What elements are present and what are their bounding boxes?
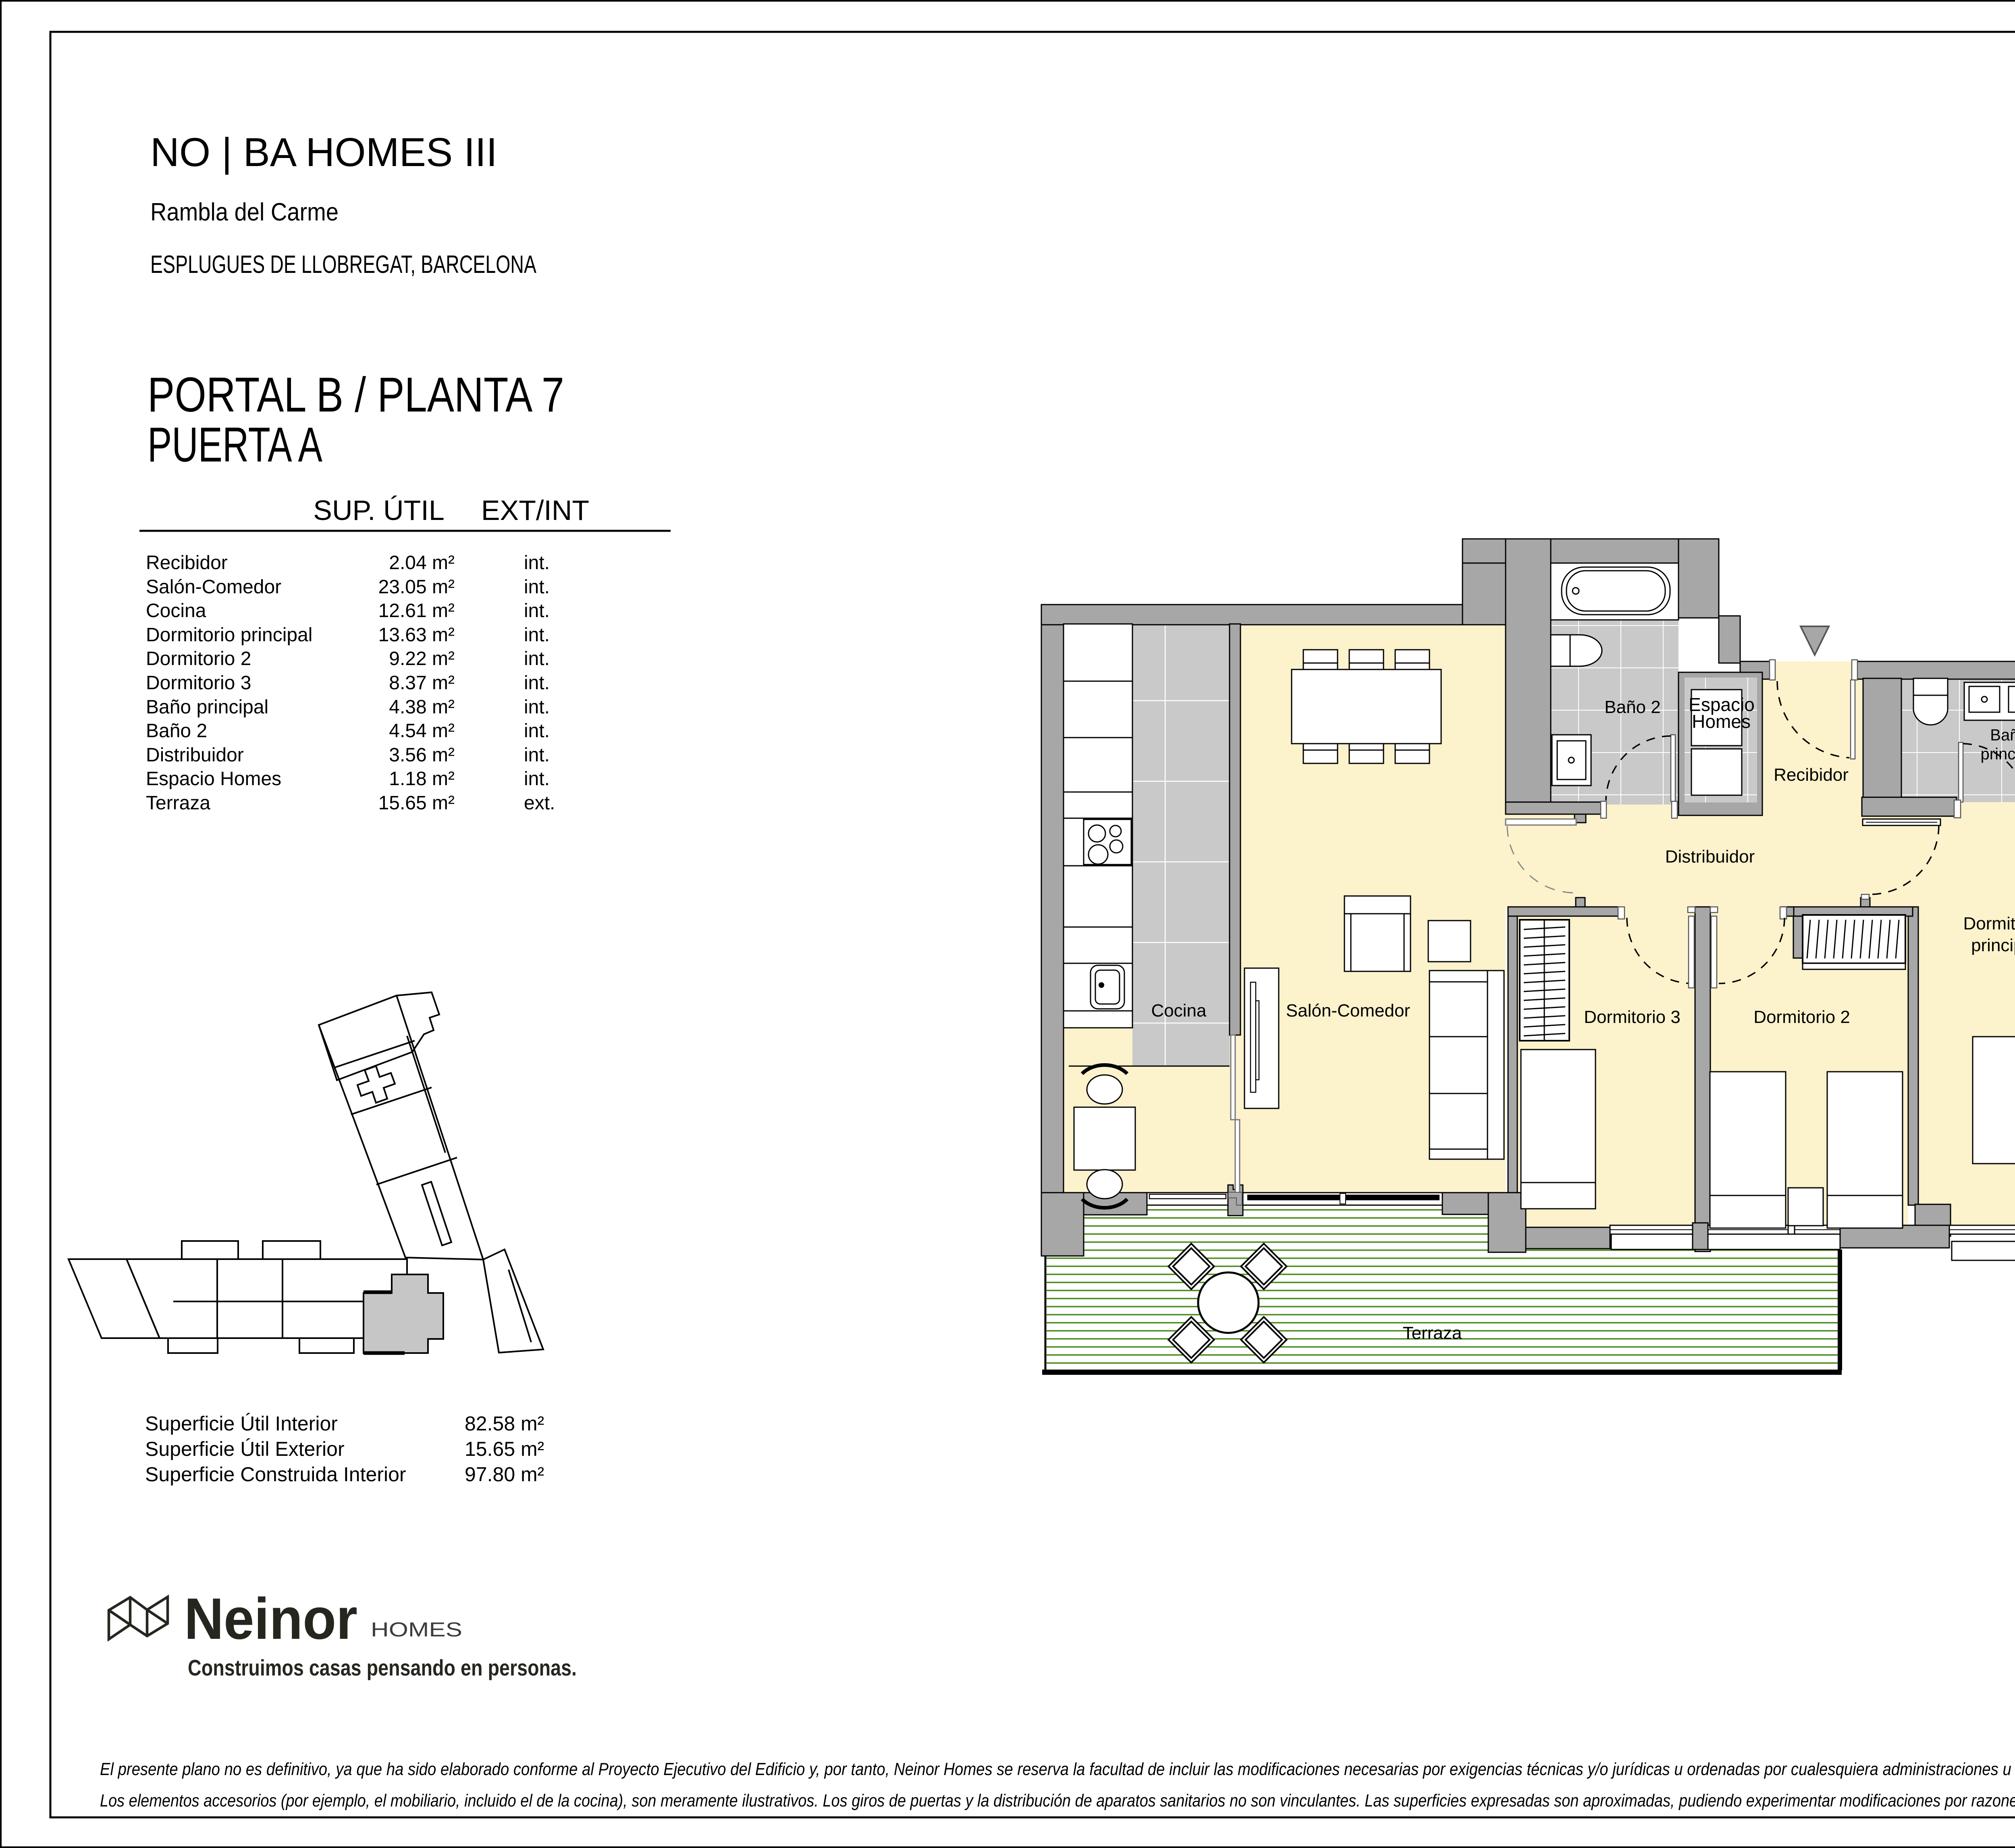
svg-text:Terraza: Terraza (146, 792, 210, 814)
svg-text:97.80 m²: 97.80 m² (465, 1463, 544, 1486)
svg-text:Recibidor: Recibidor (1774, 765, 1849, 785)
svg-text:ESPLUGUES DE LLOBREGAT, BARCEL: ESPLUGUES DE LLOBREGAT, BARCELONA (150, 251, 536, 279)
svg-text:PUERTA A: PUERTA A (147, 417, 322, 472)
svg-text:Dormitorio: Dormitorio (1963, 914, 2015, 933)
svg-text:Construimos casas pensando en: Construimos casas pensando en personas. (188, 1655, 577, 1680)
svg-text:4.38 m²: 4.38 m² (389, 696, 455, 718)
svg-text:ext.: ext. (524, 792, 555, 814)
svg-text:Superficie Útil Exterior: Superficie Útil Exterior (145, 1438, 345, 1460)
svg-text:Dormitorio 2: Dormitorio 2 (1753, 1007, 1850, 1027)
svg-text:Cocina: Cocina (146, 600, 206, 622)
svg-text:El presente plano no es defini: El presente plano no es definitivo, ya q… (100, 1760, 2015, 1779)
svg-text:NO | BA HOMES III: NO | BA HOMES III (150, 130, 497, 175)
svg-text:Dormitorio 3: Dormitorio 3 (1584, 1007, 1681, 1027)
svg-text:SUP. ÚTIL: SUP. ÚTIL (313, 495, 445, 526)
svg-text:3.56 m²: 3.56 m² (389, 744, 455, 766)
svg-text:int.: int. (524, 648, 550, 669)
svg-text:principal: principal (1981, 745, 2015, 763)
svg-text:23.05 m²: 23.05 m² (378, 576, 455, 598)
svg-text:Terraza: Terraza (1403, 1323, 1462, 1343)
svg-text:Dormitorio principal: Dormitorio principal (146, 624, 312, 646)
svg-text:Salón-Comedor: Salón-Comedor (146, 576, 281, 598)
svg-text:Baño: Baño (1990, 726, 2015, 744)
svg-text:15.65 m²: 15.65 m² (465, 1438, 544, 1460)
svg-text:8.37 m²: 8.37 m² (389, 672, 455, 694)
svg-text:82.58 m²: 82.58 m² (465, 1412, 544, 1435)
svg-text:Homes: Homes (1692, 711, 1751, 732)
svg-text:15.65 m²: 15.65 m² (378, 792, 455, 814)
svg-text:Recibidor: Recibidor (146, 552, 228, 574)
svg-text:12.61 m²: 12.61 m² (378, 600, 455, 622)
svg-text:Dormitorio 3: Dormitorio 3 (146, 672, 251, 694)
svg-text:int.: int. (524, 600, 550, 622)
svg-text:Salón-Comedor: Salón-Comedor (1286, 1001, 1410, 1021)
svg-text:Superficie Construida Interior: Superficie Construida Interior (145, 1463, 406, 1486)
svg-text:int.: int. (524, 672, 550, 694)
svg-text:Rambla del Carme: Rambla del Carme (150, 198, 339, 226)
svg-text:Los elementos accesorios (por: Los elementos accesorios (por ejemplo, e… (100, 1791, 2015, 1811)
svg-text:Baño 2: Baño 2 (1604, 697, 1660, 717)
svg-text:int.: int. (524, 720, 550, 742)
svg-text:HOMES: HOMES (371, 1618, 462, 1641)
svg-text:Neinor: Neinor (184, 1586, 357, 1651)
svg-text:int.: int. (524, 624, 550, 646)
svg-text:principal: principal (1971, 935, 2015, 955)
svg-text:int.: int. (524, 576, 550, 598)
svg-text:int.: int. (524, 768, 550, 790)
svg-text:Baño 2: Baño 2 (146, 720, 207, 742)
svg-text:Distribuidor: Distribuidor (146, 744, 244, 766)
svg-text:Dormitorio 2: Dormitorio 2 (146, 648, 251, 669)
svg-text:Baño principal: Baño principal (146, 696, 268, 718)
svg-text:int.: int. (524, 552, 550, 574)
svg-text:2.04 m²: 2.04 m² (389, 552, 455, 574)
svg-text:13.63 m²: 13.63 m² (378, 624, 455, 646)
svg-text:1.18 m²: 1.18 m² (389, 768, 455, 790)
svg-text:Cocina: Cocina (1151, 1001, 1207, 1021)
svg-text:Espacio Homes: Espacio Homes (146, 768, 281, 790)
svg-text:9.22 m²: 9.22 m² (389, 648, 455, 669)
svg-text:PORTAL B / PLANTA 7: PORTAL B / PLANTA 7 (147, 367, 564, 422)
svg-text:int.: int. (524, 696, 550, 718)
svg-text:EXT/INT: EXT/INT (481, 495, 589, 526)
svg-text:Superficie Útil Interior: Superficie Útil Interior (145, 1412, 338, 1435)
svg-text:4.54 m²: 4.54 m² (389, 720, 455, 742)
svg-text:int.: int. (524, 744, 550, 766)
svg-text:Distribuidor: Distribuidor (1665, 847, 1755, 867)
